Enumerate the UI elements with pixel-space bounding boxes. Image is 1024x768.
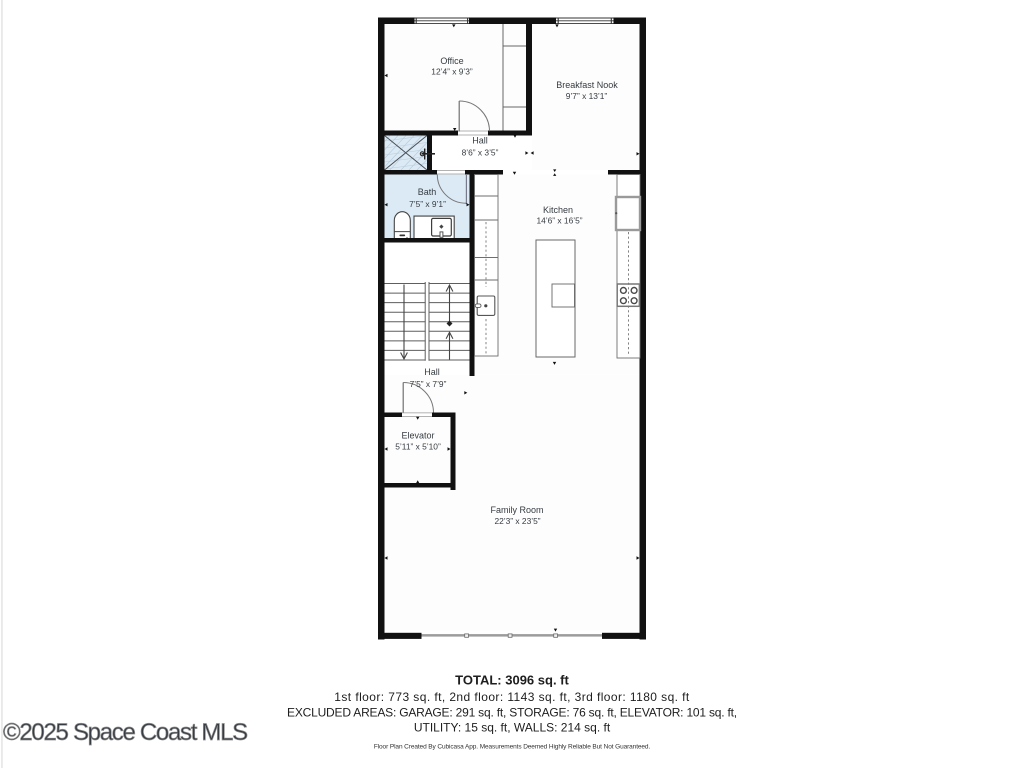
svg-text:TOTAL: 3096 sq. ft: TOTAL: 3096 sq. ft [455,673,569,688]
svg-text:Breakfast Nook: Breakfast Nook [556,80,618,90]
svg-text:1st floor: 773 sq. ft, 2nd flo: 1st floor: 773 sq. ft, 2nd floor: 1143 s… [334,690,690,704]
svg-text:Hall: Hall [424,367,440,377]
svg-text:Bath: Bath [418,187,437,197]
svg-text:8’6” x 3’5”: 8’6” x 3’5” [462,148,499,158]
svg-text:Office: Office [440,56,463,66]
svg-text:Family Room: Family Room [490,505,543,515]
svg-text:Hall: Hall [472,136,488,146]
svg-text:UTILITY: 15 sq. ft, WALLS: 214: UTILITY: 15 sq. ft, WALLS: 214 sq. ft [414,721,611,735]
svg-text:EXCLUDED AREAS: GARAGE: 291 sq: EXCLUDED AREAS: GARAGE: 291 sq. ft, STOR… [287,706,737,720]
svg-text:7’5” x 9’1”: 7’5” x 9’1” [409,199,446,209]
svg-text:©2025 Space Coast MLS: ©2025 Space Coast MLS [3,719,247,746]
svg-text:9’7” x 13’1”: 9’7” x 13’1” [566,91,608,101]
svg-text:14’6” x 16’5”: 14’6” x 16’5” [536,216,582,226]
svg-text:Floor Plan Created By Cubicasa: Floor Plan Created By Cubicasa App. Meas… [374,744,651,751]
svg-text:12’4” x 9’3”: 12’4” x 9’3” [431,67,473,77]
svg-text:5’11” x 5’10”: 5’11” x 5’10” [395,442,441,452]
svg-text:Kitchen: Kitchen [543,205,573,215]
svg-text:7’5” x 7’9”: 7’5” x 7’9” [410,379,447,389]
svg-text:Elevator: Elevator [401,431,434,441]
svg-text:22’3” x 23’5”: 22’3” x 23’5” [494,516,540,526]
